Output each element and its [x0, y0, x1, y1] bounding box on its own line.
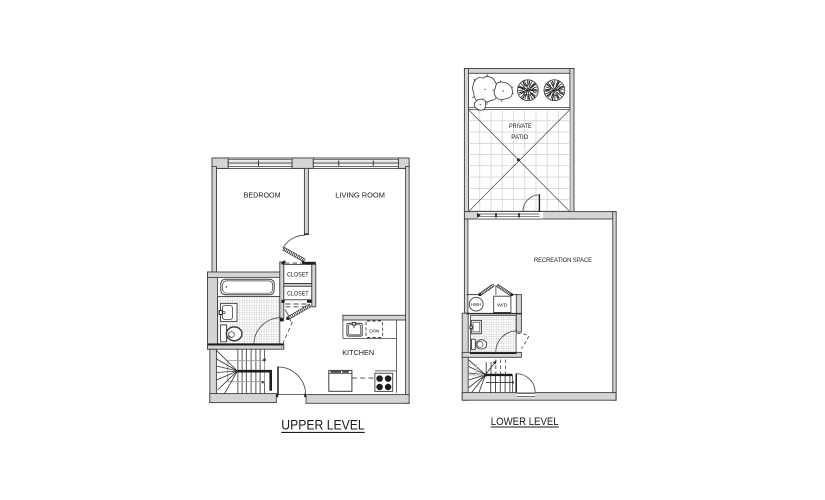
svg-text:PATIO: PATIO	[511, 134, 528, 141]
svg-text:PRIVATE: PRIVATE	[509, 123, 532, 130]
svg-text:LOWER LEVEL: LOWER LEVEL	[491, 416, 559, 428]
svg-text:CLOSET: CLOSET	[287, 291, 309, 298]
svg-text:HWH: HWH	[471, 302, 481, 307]
svg-text:D/W: D/W	[369, 328, 380, 334]
svg-text:RECREATION SPACE: RECREATION SPACE	[534, 257, 592, 264]
svg-text:KITCHEN: KITCHEN	[342, 348, 374, 357]
svg-text:LIVING ROOM: LIVING ROOM	[335, 191, 385, 200]
svg-text:W/D: W/D	[497, 303, 508, 309]
svg-text:UPPER LEVEL: UPPER LEVEL	[281, 417, 365, 432]
svg-text:BEDROOM: BEDROOM	[244, 191, 281, 200]
svg-text:CLOSET: CLOSET	[287, 272, 309, 279]
